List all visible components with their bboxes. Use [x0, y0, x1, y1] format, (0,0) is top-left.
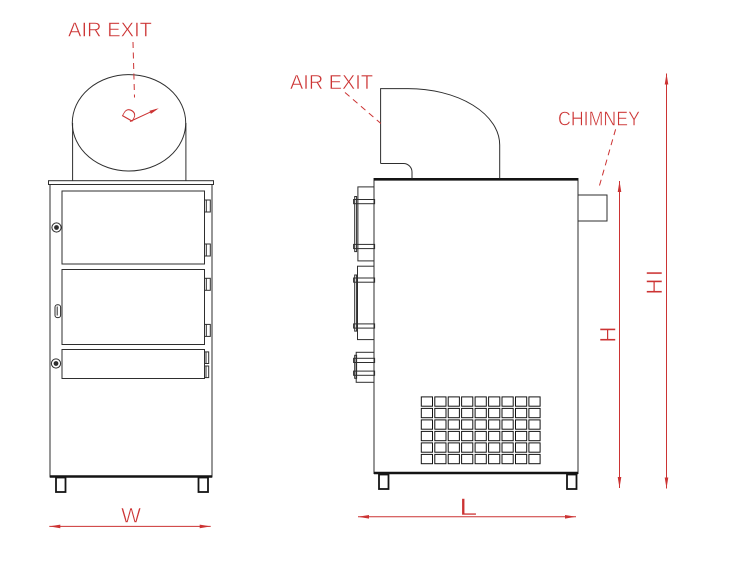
svg-text:W: W: [121, 505, 141, 528]
svg-text:AIR EXIT: AIR EXIT: [290, 72, 373, 94]
svg-text:AIR EXIT: AIR EXIT: [68, 20, 152, 42]
svg-text:H: H: [596, 327, 621, 343]
svg-text:L: L: [459, 494, 477, 521]
svg-text:D: D: [118, 104, 142, 125]
svg-text:HI: HI: [642, 268, 667, 295]
svg-text:CHIMNEY: CHIMNEY: [558, 109, 640, 131]
